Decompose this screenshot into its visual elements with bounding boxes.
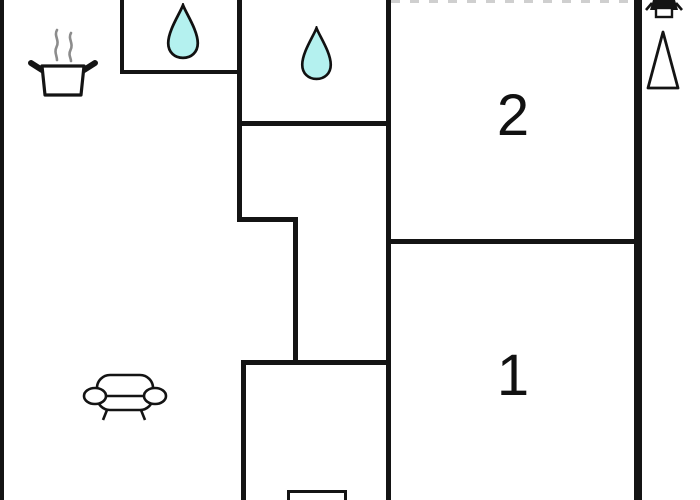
sofa-icon — [76, 369, 171, 424]
room-1-label: 1 — [483, 346, 543, 406]
wall-hall-bottom — [241, 360, 391, 365]
north-arrow-icon — [645, 29, 681, 91]
steam-icon — [56, 30, 72, 61]
wall-center-vertical — [386, 0, 391, 500]
water-drop-icon — [300, 26, 333, 81]
water-drop-icon — [164, 3, 202, 60]
wall-topleft-room-left — [120, 0, 124, 74]
wall-topleft-room-bottom — [120, 70, 242, 74]
fixture-icon — [287, 490, 347, 500]
pot-handle-right — [84, 63, 95, 70]
pot-handle-left — [31, 63, 42, 70]
wall-bathroom-bottom — [237, 121, 391, 126]
cropped-dashed-line — [391, 0, 634, 3]
room-2-label: 2 — [483, 86, 543, 146]
wall-jog-vertical — [293, 217, 298, 364]
wall-room-divider — [388, 239, 636, 244]
wall-left-edge — [0, 0, 4, 500]
floor-plan: 2 1 — [0, 0, 700, 500]
wall-right-outer-thick — [634, 0, 642, 500]
wall-bottomroom-left — [241, 360, 246, 500]
wall-jog-horizontal — [237, 217, 298, 222]
pot-body — [42, 66, 84, 95]
wall-center-upper — [237, 0, 242, 222]
cooking-pot-icon — [26, 26, 100, 100]
wall-lamp-icon — [640, 0, 688, 22]
